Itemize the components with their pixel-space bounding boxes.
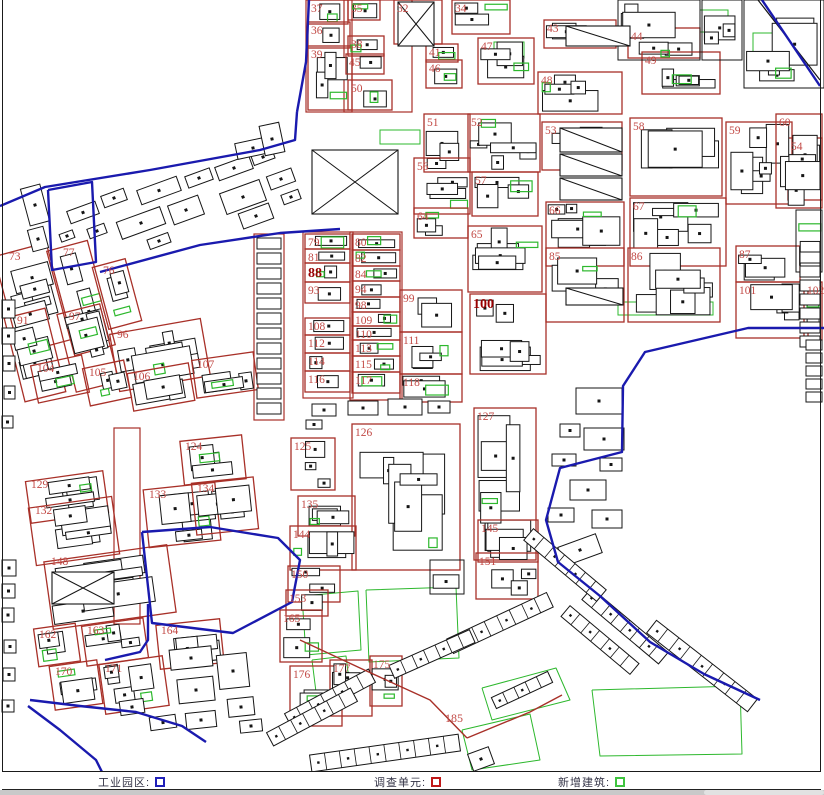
tiny-house xyxy=(257,358,281,369)
tiny-house xyxy=(257,268,281,279)
building-mark xyxy=(161,385,164,388)
tiny-house xyxy=(257,373,281,384)
building-mark xyxy=(801,158,804,161)
building-mark xyxy=(321,83,324,86)
legend-label: 新增建筑: xyxy=(558,774,610,790)
new-building-outline xyxy=(516,242,537,247)
building-mark xyxy=(310,601,313,604)
house-strip xyxy=(561,606,639,675)
building-mark xyxy=(470,18,473,21)
map-window: 3736393538455032414634474344484953545152… xyxy=(0,0,824,795)
unit-number-label: 60 xyxy=(779,117,791,129)
building-mark xyxy=(512,146,515,149)
new-building-outline xyxy=(114,306,131,316)
unit-number-label: 96 xyxy=(117,329,129,341)
unit-number-label: 162 xyxy=(39,629,57,641)
building-footprint xyxy=(548,508,574,522)
unit-number-label: 65 xyxy=(471,229,483,241)
unit-number-label: 115 xyxy=(355,359,372,371)
building-mark xyxy=(328,342,331,345)
building-mark xyxy=(718,26,721,29)
building-mark xyxy=(87,531,90,534)
building-mark xyxy=(674,148,677,151)
unit-number-label: 51 xyxy=(427,117,439,129)
industrial-park-boundary xyxy=(142,527,300,633)
new-building-outline xyxy=(380,130,420,144)
building-mark xyxy=(309,465,312,468)
unit-number-label: 58 xyxy=(633,121,645,133)
building-footprint xyxy=(27,226,48,251)
building-footprint xyxy=(2,560,16,576)
building-mark xyxy=(496,261,499,264)
new-building-outline xyxy=(485,4,507,10)
unit-number-label: 151 xyxy=(479,556,497,568)
legend-item-survey-unit: 调查单元: xyxy=(374,774,441,790)
unit-number-label: 110 xyxy=(355,329,372,341)
building-mark xyxy=(211,468,214,471)
building-mark xyxy=(503,312,506,315)
building-mark xyxy=(740,170,743,173)
building-mark xyxy=(200,456,203,459)
unit-number-label: 175 xyxy=(373,659,391,671)
building-mark xyxy=(69,514,72,517)
building-footprint xyxy=(584,428,624,450)
building-mark xyxy=(577,86,580,89)
building-footprint xyxy=(388,399,422,415)
unit-number-label: 163 xyxy=(87,625,105,637)
hatched-building xyxy=(560,178,622,200)
unit-number-label: 104 xyxy=(37,363,55,375)
building-mark xyxy=(728,29,731,32)
building-mark xyxy=(666,76,669,79)
unit-number-label: 129 xyxy=(31,479,49,491)
survey-unit xyxy=(352,424,460,570)
unit-number-label: 177 xyxy=(333,663,351,675)
unit-number-label: 125 xyxy=(294,441,312,453)
unit-number-label: 43 xyxy=(547,23,559,35)
building-mark xyxy=(770,296,773,299)
building-footprint xyxy=(2,328,15,344)
building-mark xyxy=(760,175,763,178)
building-footprint xyxy=(239,719,262,733)
building-mark xyxy=(56,371,60,375)
hatched-building xyxy=(560,154,622,176)
building-mark xyxy=(676,278,679,281)
unit-number-label: 113 xyxy=(355,343,372,355)
building-mark xyxy=(173,507,176,510)
unit-number-label: 132 xyxy=(35,505,53,517)
unit-number-label: 134 xyxy=(197,483,215,495)
hatched-building xyxy=(566,288,623,305)
building-footprint xyxy=(2,608,14,622)
unit-number-label: 124 xyxy=(185,441,203,453)
unit-number-label: 118 xyxy=(403,377,420,389)
legend-item-new-building: 新增建筑: xyxy=(558,774,625,790)
survey-boundary-line xyxy=(467,695,562,738)
tiny-house xyxy=(800,308,820,319)
map-frame-left xyxy=(2,0,3,789)
building-mark xyxy=(329,64,332,67)
unit-number-label: 109 xyxy=(355,315,373,327)
hatched-building xyxy=(566,26,630,46)
building-mark xyxy=(644,232,647,235)
building-mark xyxy=(370,288,373,291)
building-mark xyxy=(448,150,451,153)
building-mark xyxy=(367,302,370,305)
unit-number-label: 111 xyxy=(403,335,420,347)
unit-number-label: 150 xyxy=(291,569,309,581)
building-mark xyxy=(687,79,690,82)
industrial-park-boundary xyxy=(297,0,309,112)
building-mark xyxy=(364,9,367,12)
building-footprint xyxy=(185,168,214,188)
unit-number-label: 91 xyxy=(17,315,29,327)
hatched-building xyxy=(52,572,114,604)
unit-number-label: 102 xyxy=(807,285,824,297)
building-mark xyxy=(326,380,329,383)
unit-number-label: 87 xyxy=(739,249,751,261)
building-mark xyxy=(112,631,115,634)
unit-number-label: 76 xyxy=(103,265,115,277)
building-mark xyxy=(106,379,110,383)
unit-number-label: 80 xyxy=(355,237,367,249)
building-footprint xyxy=(137,176,182,204)
building-mark xyxy=(527,572,530,575)
tiny-house xyxy=(257,298,281,309)
building-mark xyxy=(328,10,331,13)
building-mark xyxy=(512,547,515,550)
unit-number-label: 85 xyxy=(549,251,561,263)
building-mark xyxy=(518,586,521,589)
building-footprint xyxy=(348,401,378,415)
tiny-house xyxy=(800,266,820,277)
building-mark xyxy=(327,325,330,328)
building-mark xyxy=(576,270,579,273)
new-building-parcel xyxy=(592,686,742,756)
map-frame-right xyxy=(820,0,821,789)
unit-number-label: 126 xyxy=(355,427,373,439)
building-mark xyxy=(764,266,767,269)
building-mark xyxy=(331,516,334,519)
unit-number-label: 54 xyxy=(791,141,803,153)
unit-number-label: 48 xyxy=(541,75,553,87)
city-block xyxy=(702,0,742,60)
building-footprint xyxy=(3,356,15,371)
building-mark xyxy=(377,256,380,259)
tiny-house xyxy=(257,283,281,294)
unit-number-label: 107 xyxy=(197,359,215,371)
building-mark xyxy=(126,358,129,361)
new-building-outline xyxy=(377,344,393,350)
unit-number-label: 49 xyxy=(645,55,657,67)
unit-number-label: 52 xyxy=(471,117,483,129)
building-mark xyxy=(407,505,410,508)
building-footprint xyxy=(2,416,13,428)
building-mark xyxy=(435,314,438,317)
building-footprint xyxy=(177,676,215,704)
building-mark xyxy=(486,195,489,198)
building-mark xyxy=(666,236,669,239)
unit-number-label: 88 xyxy=(308,266,322,281)
building-mark xyxy=(501,577,504,580)
industrial-park-boundary xyxy=(28,706,110,771)
unit-number-label: 93 xyxy=(308,285,320,297)
building-mark xyxy=(330,255,333,258)
unit-number-label: 135 xyxy=(301,499,319,511)
building-mark xyxy=(373,331,376,334)
unit-number-label: 145 xyxy=(481,523,499,535)
building-mark xyxy=(498,240,501,243)
unit-number-label: 36 xyxy=(311,25,323,37)
building-footprint xyxy=(306,420,322,429)
unit-number-label: 176 xyxy=(293,669,311,681)
building-mark xyxy=(570,207,573,210)
building-mark xyxy=(417,478,420,481)
unit-number-label: 105 xyxy=(89,367,107,379)
building-mark xyxy=(757,136,760,139)
building-mark xyxy=(512,457,515,460)
scrollbar-thumb[interactable] xyxy=(704,790,824,795)
unit-number-label: 106 xyxy=(133,371,151,383)
building-footprint xyxy=(2,584,15,598)
building-mark xyxy=(681,300,684,303)
building-mark xyxy=(244,379,247,382)
unit-number-label: 170 xyxy=(55,666,73,678)
building-mark xyxy=(766,60,769,63)
tiny-house xyxy=(257,328,281,339)
building-footprint xyxy=(428,401,450,413)
building-footprint xyxy=(59,230,75,242)
building-footprint xyxy=(227,697,255,718)
industrial-park-boundary xyxy=(100,229,340,272)
unit-number-label: 50 xyxy=(351,83,363,95)
building-mark xyxy=(330,239,333,242)
unit-number-label: 98 xyxy=(355,300,367,312)
unit-number-label: 79 xyxy=(308,237,320,249)
unit-number-label: 41 xyxy=(429,47,441,59)
building-mark xyxy=(117,592,120,595)
building-footprint xyxy=(2,700,14,712)
new-building-swatch-icon xyxy=(615,777,625,787)
horizontal-scrollbar[interactable] xyxy=(0,790,824,795)
unit-number-label: 37 xyxy=(311,3,323,15)
unit-number-label: 148 xyxy=(51,556,69,568)
building-footprint xyxy=(216,653,249,690)
unit-number-label: 171 xyxy=(105,663,123,675)
building-footprint xyxy=(3,668,15,681)
unit-number-label: 185 xyxy=(445,711,463,725)
new-building-outline xyxy=(100,389,109,397)
building-footprint xyxy=(116,207,165,240)
building-mark xyxy=(346,676,349,679)
building-footprint xyxy=(4,640,16,653)
building-footprint xyxy=(87,223,107,239)
building-mark xyxy=(139,676,142,679)
building-footprint xyxy=(4,386,15,399)
legend-label: 工业园区: xyxy=(98,774,150,790)
unit-number-label: 38 xyxy=(351,39,363,51)
unit-number-label: 94 xyxy=(355,284,367,296)
building-mark xyxy=(68,484,71,487)
unit-number-label: 86 xyxy=(631,251,643,263)
new-building-outline xyxy=(451,200,468,208)
building-footprint xyxy=(600,458,622,471)
building-mark xyxy=(764,167,767,170)
building-mark xyxy=(366,43,369,46)
unit-number-label: 164 xyxy=(161,625,179,637)
unit-number-label: 165 xyxy=(283,613,301,625)
building-mark xyxy=(569,99,572,102)
building-mark xyxy=(232,498,235,501)
unit-number-label: 64 xyxy=(417,211,429,223)
building-mark xyxy=(600,230,603,233)
building-mark xyxy=(495,181,498,184)
tiny-house xyxy=(257,388,281,399)
legend-item-industrial-park: 工业园区: xyxy=(98,774,165,790)
building-mark xyxy=(129,641,132,644)
unit-number-label: 153 xyxy=(289,593,307,605)
unit-number-label: 116 xyxy=(308,374,325,386)
unit-number-label: 133 xyxy=(149,489,167,501)
hatched-building xyxy=(312,150,398,214)
building-footprint xyxy=(281,189,301,205)
building-footprint xyxy=(169,646,213,670)
hatched-building xyxy=(560,128,622,152)
building-mark xyxy=(558,88,561,91)
building-footprint xyxy=(576,388,622,414)
tiny-house xyxy=(257,238,281,249)
unit-number-label: 81 xyxy=(308,252,320,264)
industrial-park-swatch-icon xyxy=(155,777,165,787)
unit-number-label: 127 xyxy=(477,411,495,423)
unit-number-label: 34 xyxy=(455,3,467,15)
survey-unit-swatch-icon xyxy=(431,777,441,787)
building-mark xyxy=(314,448,317,451)
building-mark xyxy=(677,48,680,51)
building-mark xyxy=(116,379,120,383)
unit-number-label: 53 xyxy=(545,125,557,137)
unit-number-label: 44 xyxy=(631,31,643,43)
unit-number-label: 144 xyxy=(293,529,311,541)
unit-number-label: 84 xyxy=(355,269,367,281)
unit-number-label: 59 xyxy=(729,125,741,137)
building-mark xyxy=(710,36,713,39)
building-mark xyxy=(435,162,438,165)
building-mark xyxy=(187,534,190,537)
building-footprint xyxy=(312,404,336,416)
building-mark xyxy=(647,24,650,27)
building-mark xyxy=(323,482,326,485)
city-block xyxy=(430,560,464,594)
building-footprint xyxy=(592,510,622,528)
tiny-house xyxy=(257,313,281,324)
unit-number-label: 45 xyxy=(349,57,361,69)
house-strip xyxy=(647,620,758,711)
building-mark xyxy=(501,358,504,361)
building-mark xyxy=(102,637,105,640)
building-mark xyxy=(321,587,324,590)
building-mark xyxy=(441,187,444,190)
house-strip xyxy=(310,734,461,771)
building-mark xyxy=(384,272,387,275)
new-building-outline xyxy=(384,694,394,698)
building-mark xyxy=(652,47,655,50)
map-canvas[interactable]: 3736393538455032414634474344484953545152… xyxy=(0,0,824,771)
building-mark xyxy=(374,97,377,100)
building-mark xyxy=(494,53,497,56)
new-building-outline xyxy=(799,224,821,231)
unit-number-label: 117 xyxy=(355,375,372,387)
building-mark xyxy=(500,347,503,350)
building-mark xyxy=(68,498,71,501)
unit-number-label: 66 xyxy=(549,205,561,217)
building-mark xyxy=(295,646,298,649)
building-mark xyxy=(328,292,331,295)
unit-number-label: 77 xyxy=(63,247,75,259)
unit-number-label: 108 xyxy=(308,321,326,333)
building-footprint xyxy=(147,233,171,250)
unit-number-label: 82 xyxy=(355,253,367,265)
building-mark xyxy=(698,232,701,235)
building-footprint xyxy=(560,424,580,437)
unit-number-label: 57 xyxy=(475,175,487,187)
building-mark xyxy=(331,542,334,545)
building-mark xyxy=(425,224,428,227)
unit-number-label: 35 xyxy=(351,3,363,15)
building-mark xyxy=(369,61,372,64)
unit-number-label: 99 xyxy=(403,293,415,305)
building-mark xyxy=(576,228,579,231)
building-footprint xyxy=(2,300,15,318)
building-footprint xyxy=(266,168,295,190)
legend-label: 调查单元: xyxy=(374,774,426,790)
legend-bar: 工业园区: 调查单元: 新增建筑: xyxy=(2,772,821,789)
building-mark xyxy=(123,693,126,696)
building-mark xyxy=(563,81,566,84)
unit-number-label: 114 xyxy=(308,356,325,368)
house-strip xyxy=(389,630,475,679)
building-mark xyxy=(329,34,332,37)
building-mark xyxy=(494,455,497,458)
unit-number-label: 32 xyxy=(397,3,409,15)
unit-number-label: 73 xyxy=(9,251,21,263)
building-mark xyxy=(445,580,448,583)
new-building-outline xyxy=(583,212,601,216)
unit-number-label: 97 xyxy=(69,311,81,323)
unit-number-label: 39 xyxy=(311,49,323,61)
unit-number-label: 112 xyxy=(308,338,325,350)
building-mark xyxy=(329,270,332,273)
building-footprint xyxy=(215,155,254,180)
building-mark xyxy=(76,689,79,692)
building-mark xyxy=(518,350,521,353)
tiny-house xyxy=(257,403,281,414)
building-footprint xyxy=(570,480,606,500)
unit-number-label: 100 xyxy=(473,297,494,312)
tiny-house xyxy=(257,343,281,354)
building-footprint xyxy=(168,195,205,225)
building-mark xyxy=(222,383,225,386)
building-footprint xyxy=(101,188,128,207)
building-footprint xyxy=(185,710,217,729)
building-mark xyxy=(493,133,496,136)
industrial-park-boundary xyxy=(30,700,206,742)
unit-number-label: 101 xyxy=(739,285,757,297)
unit-number-label: 46 xyxy=(429,63,441,75)
building-mark xyxy=(489,506,492,509)
unit-number-label: 47 xyxy=(481,41,493,53)
tiny-house xyxy=(800,252,820,263)
